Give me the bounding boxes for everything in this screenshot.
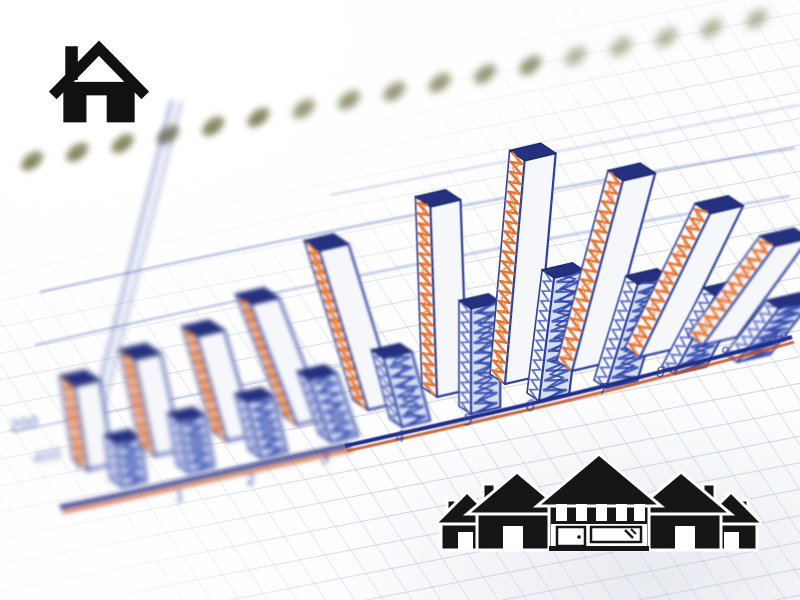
home-icon xyxy=(46,33,152,127)
x-tick-label-10: 10 xyxy=(771,330,789,346)
y-tick-label-400: 400 xyxy=(31,445,62,468)
x-tick-label-8: 8 xyxy=(655,365,666,382)
notebook-photo-scene: 12345678910200400 xyxy=(0,0,800,600)
y-tick-label-200: 200 xyxy=(8,413,39,436)
x-tick-label-9: 9 xyxy=(721,345,731,362)
houses-with-storefront-icon xyxy=(437,452,761,558)
bar-group-6 xyxy=(415,190,500,414)
x-tick-label-1: 1 xyxy=(173,486,186,506)
x-tick-label-4: 4 xyxy=(393,426,406,446)
storefront-detail xyxy=(549,504,649,551)
x-tick-label-2: 2 xyxy=(244,469,257,489)
